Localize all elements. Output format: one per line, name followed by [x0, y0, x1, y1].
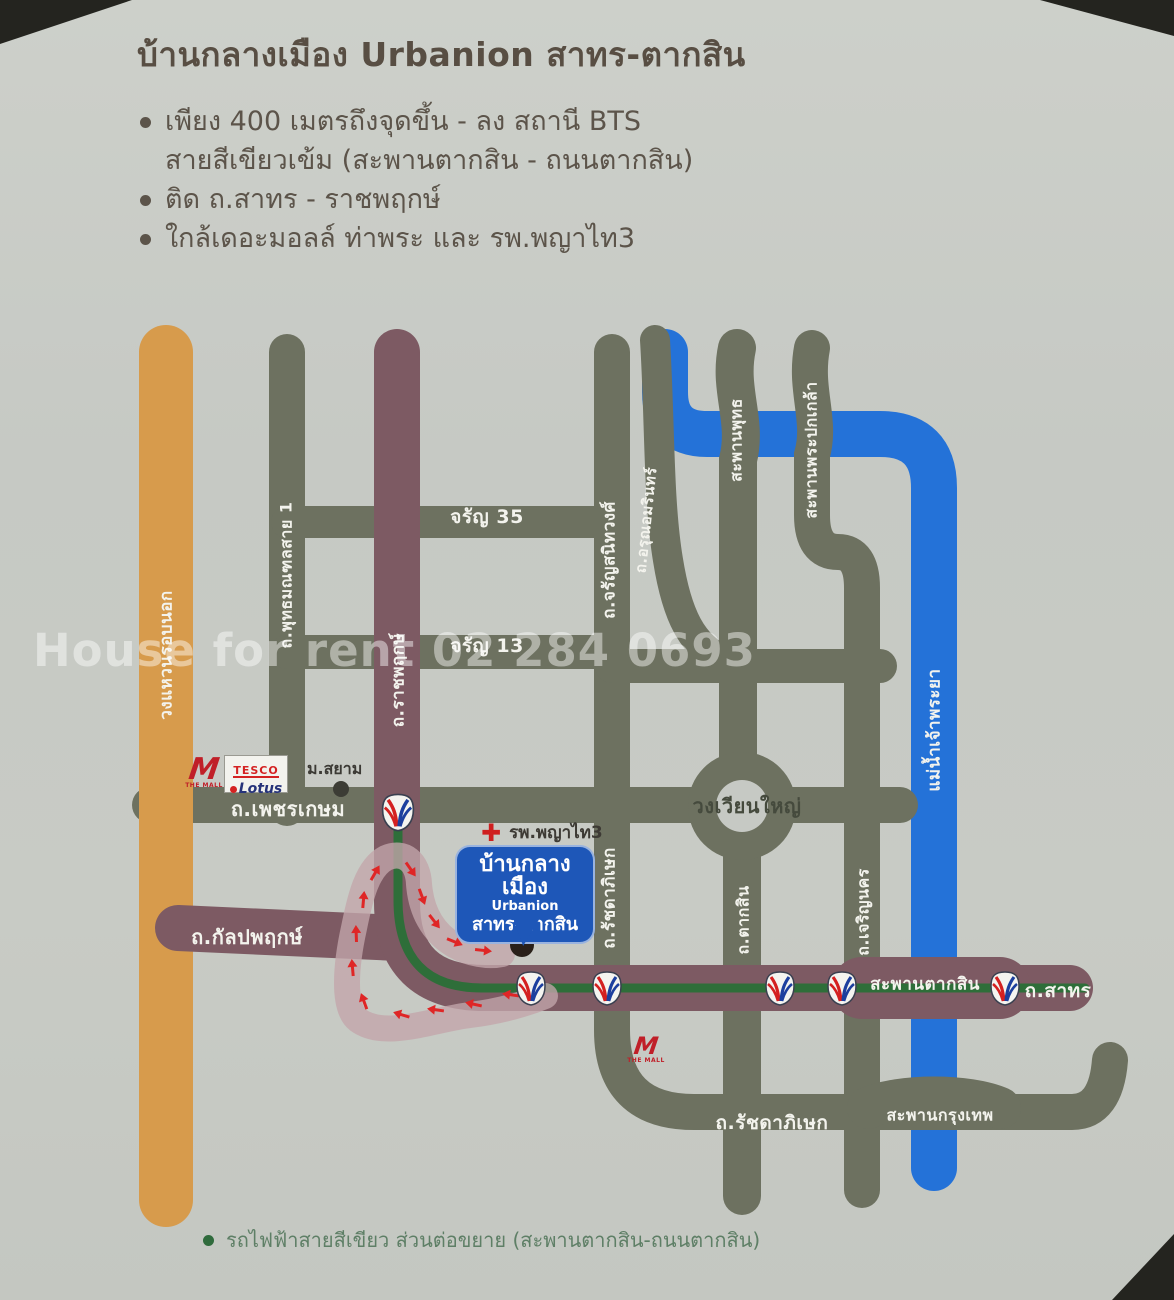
label-saphan-phut: สะพานพุทธ — [725, 398, 750, 482]
bullet-text: เพียง 400 เมตรถึงจุดขึ้น - ลง สถานี BTS — [165, 102, 641, 141]
watermark: House for rent 02 284 0693 — [33, 624, 756, 677]
the-mall-logo: M THE MALL — [180, 756, 228, 788]
bts-legend: รถไฟฟ้าสายสีเขียว ส่วนต่อขยาย (สะพานตากส… — [203, 1224, 760, 1256]
bullet-dot-icon — [140, 117, 151, 128]
bullet-text: ติด ถ.สาทร - ราชพฤกษ์ — [165, 180, 441, 219]
label-charan35: จรัญ 35 — [450, 502, 524, 532]
bts-station-icon — [766, 972, 794, 1005]
bullet-item: ติด ถ.สาทร - ราชพฤกษ์ — [138, 180, 838, 219]
bullet-dot-icon — [140, 195, 151, 206]
the-mall-m-icon: M — [624, 1036, 667, 1058]
hospital-cross-icon: ✚ — [481, 821, 501, 845]
callout-project-name: บ้านกลางเมือง — [459, 853, 591, 899]
phyathai3-label: รพ.พญาไท3 — [509, 819, 603, 846]
label-kanlapaphruek: ถ.กัลปพฤกษ์ — [191, 921, 303, 953]
bullet-item: เพียง 400 เมตรถึงจุดขึ้น - ลง สถานี BTS — [138, 102, 838, 141]
tesco-lotus-logo: TESCO Lotus — [224, 755, 288, 793]
label-sathorn: ถ.สาทร — [1025, 976, 1092, 1006]
bullet-text: สายสีเขียวเข้ม (สะพานตากสิน - ถนนตากสิน) — [165, 141, 693, 180]
the-mall-logo-south: M THE MALL — [626, 1036, 666, 1063]
label-charansanitwong: ถ.จรัญสนิทวงศ์ — [596, 501, 623, 619]
phyathai3-hospital: ✚ รพ.พญาไท3 — [481, 819, 603, 846]
label-charoen-nakhon: ถ.เจริญนคร — [852, 868, 877, 956]
bullet-item: ใกล้เดอะมอลล์ ท่าพระ และ รพ.พญาไท3 — [138, 219, 838, 258]
label-taksin-road: ถ.ตากสิน — [732, 885, 757, 954]
label-saphan-taksin: สะพานตากสิน — [870, 971, 980, 998]
bullet-item-continued: สายสีเขียวเข้ม (สะพานตากสิน - ถนนตากสิน) — [138, 141, 838, 180]
feature-bullets: เพียง 400 เมตรถึงจุดขึ้น - ลง สถานี BTS … — [138, 102, 838, 259]
label-chao-phraya: แม่น้ำเจ้าพระยา — [921, 668, 948, 791]
callout-brand: Urbanion — [459, 899, 591, 915]
legend-green-dot-icon — [203, 1235, 214, 1246]
bullet-text: ใกล้เดอะมอลล์ ท่าพระ และ รพ.พญาไท3 — [165, 219, 635, 258]
map-page: วงแหวนรอบนอก ถ.พุทธมณฑลสาย 1 จรัญ 35 จรั… — [0, 0, 1174, 1300]
label-saphan-krungthep: สะพานกรุงเทพ — [887, 1104, 994, 1129]
legend-text: รถไฟฟ้าสายสีเขียว ส่วนต่อขยาย (สะพานตากส… — [226, 1224, 760, 1256]
label-ratchadaphisek-vertical: ถ.รัชดาภิเษก — [596, 847, 623, 949]
label-saphan-phra-pok-klao: สะพานพระปกเกล้า — [800, 381, 825, 518]
label-phetkasem: ถ.เพชรเกษม — [231, 793, 345, 825]
page-title: บ้านกลางเมือง Urbanion สาทร-ตากสิน — [137, 28, 746, 81]
siam-university-label: ม.สยาม — [307, 757, 362, 782]
the-mall-m-icon: M — [178, 756, 230, 783]
bts-station-icon — [593, 972, 621, 1005]
bts-station-icon — [828, 972, 856, 1005]
lotus-dot-icon — [230, 786, 237, 793]
bts-station-icon — [517, 972, 545, 1005]
bts-station-icon — [991, 972, 1019, 1005]
page-header: บ้านกลางเมือง Urbanion สาทร-ตากสิน — [137, 28, 746, 81]
label-ratchadaphisek-horizontal: ถ.รัชดาภิเษก — [716, 1108, 829, 1138]
bts-station-icon — [383, 794, 414, 830]
bullet-dot-icon — [140, 234, 151, 245]
label-wongwian-yai: วงเวียนใหญ่ — [693, 790, 802, 822]
